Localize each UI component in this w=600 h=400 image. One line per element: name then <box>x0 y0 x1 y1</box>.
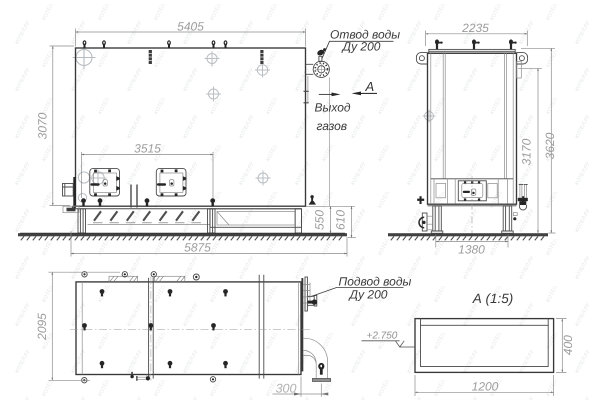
svg-text:Выход: Выход <box>315 101 351 115</box>
svg-text:400: 400 <box>561 335 575 355</box>
svg-text:2235: 2235 <box>461 21 489 35</box>
svg-text:Ду 200: Ду 200 <box>341 40 381 54</box>
svg-text:А: А <box>365 79 375 94</box>
svg-text:3170: 3170 <box>520 138 534 165</box>
svg-text:Подвод воды: Подвод воды <box>339 275 412 289</box>
svg-text:1200: 1200 <box>472 379 499 393</box>
svg-text:3620: 3620 <box>543 132 557 159</box>
svg-text:газов: газов <box>317 119 348 133</box>
svg-text:3070: 3070 <box>36 112 50 139</box>
svg-text:1380: 1380 <box>458 243 485 257</box>
svg-text:5405: 5405 <box>177 19 204 33</box>
svg-text:610: 610 <box>334 210 348 230</box>
svg-text:2095: 2095 <box>35 313 49 341</box>
svg-text:300: 300 <box>276 382 297 396</box>
svg-text:550: 550 <box>313 210 327 230</box>
svg-text:3515: 3515 <box>134 142 161 156</box>
svg-text:+2.750: +2.750 <box>367 331 398 342</box>
svg-text:5875: 5875 <box>184 241 211 255</box>
svg-text:Ду 200: Ду 200 <box>348 288 388 302</box>
svg-text:А (1:5): А (1:5) <box>472 291 514 306</box>
